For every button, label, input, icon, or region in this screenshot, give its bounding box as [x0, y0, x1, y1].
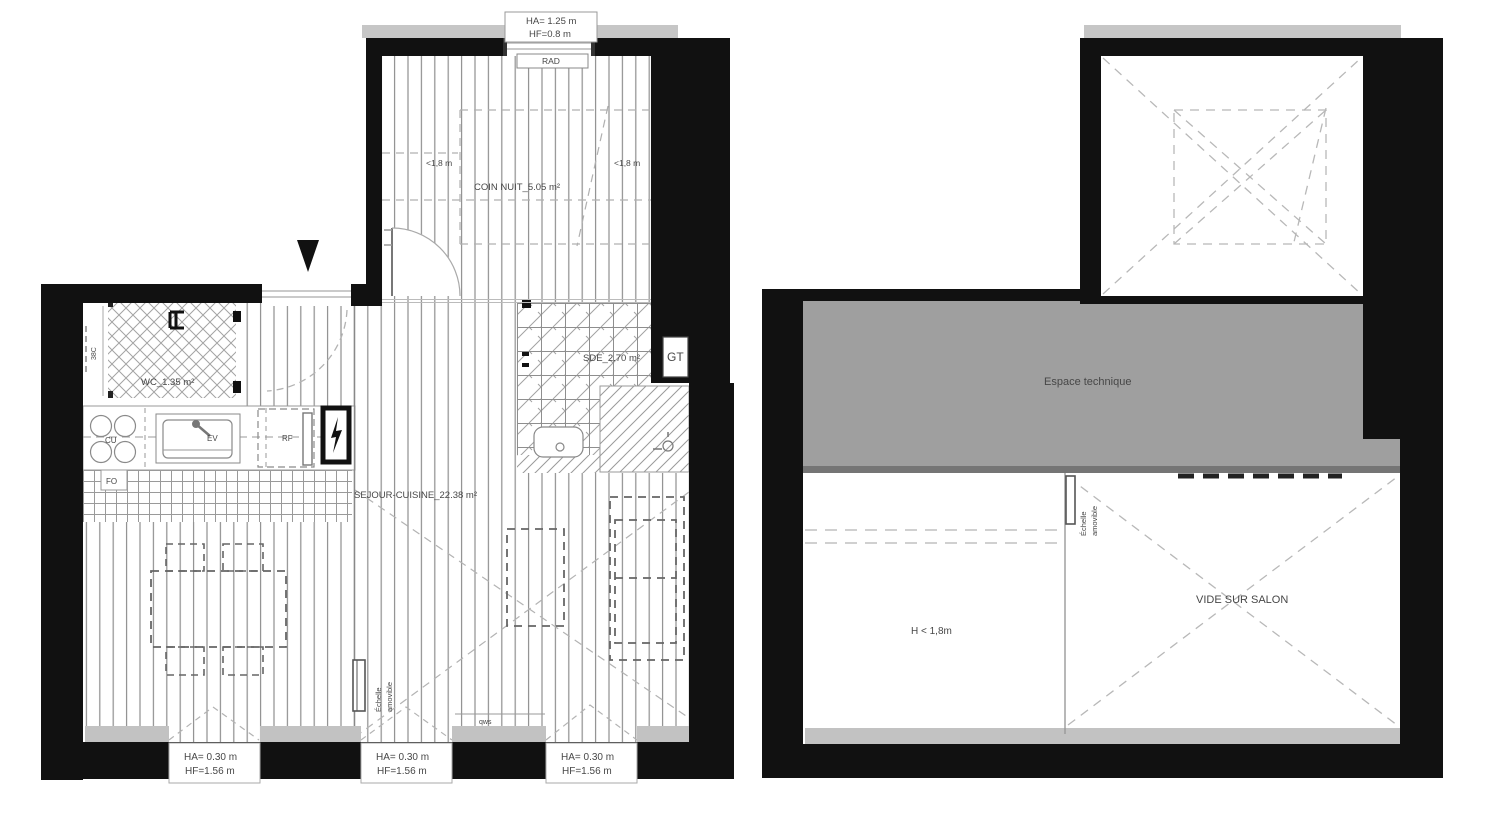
svg-text:HF=1.56 m: HF=1.56 m [377, 766, 427, 777]
svg-text:amovible: amovible [1090, 506, 1099, 536]
svg-text:SDE_2.70 m²: SDE_2.70 m² [583, 353, 640, 364]
svg-text:WC_1.35 m²: WC_1.35 m² [141, 377, 194, 388]
svg-text:EV: EV [207, 434, 218, 443]
svg-text:HA= 0.30 m: HA= 0.30 m [376, 752, 429, 763]
svg-text:HF=1.56 m: HF=1.56 m [185, 766, 235, 777]
svg-text:CU: CU [105, 436, 117, 445]
svg-text:Échelle: Échelle [1079, 511, 1088, 536]
svg-text:GT: GT [667, 350, 684, 364]
svg-text:SEJOUR-CUISINE_22.38 m²: SEJOUR-CUISINE_22.38 m² [354, 490, 477, 501]
svg-text:FO: FO [106, 477, 117, 486]
svg-text:VIDE SUR SALON: VIDE SUR SALON [1196, 594, 1288, 606]
svg-text:HF=0.8 m: HF=0.8 m [529, 29, 571, 40]
svg-text:RAD: RAD [542, 56, 560, 66]
svg-text:amovible: amovible [385, 682, 394, 712]
svg-text:HA= 0.30 m: HA= 0.30 m [184, 752, 237, 763]
svg-text:HA= 1.25 m: HA= 1.25 m [526, 16, 577, 27]
svg-text:38C: 38C [91, 347, 98, 360]
svg-text:COIN NUIT_5.05 m²: COIN NUIT_5.05 m² [474, 182, 560, 193]
svg-text:H < 1,8m: H < 1,8m [911, 626, 952, 637]
svg-text:HA= 0.30 m: HA= 0.30 m [561, 752, 614, 763]
svg-text:<1,8 m: <1,8 m [426, 158, 452, 168]
svg-text:Espace technique: Espace technique [1044, 376, 1131, 388]
svg-text:HF=1.56 m: HF=1.56 m [562, 766, 612, 777]
svg-text:RF: RF [282, 434, 293, 443]
svg-text:Échelle: Échelle [374, 687, 383, 712]
svg-text:<1,8 m: <1,8 m [614, 158, 640, 168]
svg-text:qws: qws [479, 719, 492, 726]
